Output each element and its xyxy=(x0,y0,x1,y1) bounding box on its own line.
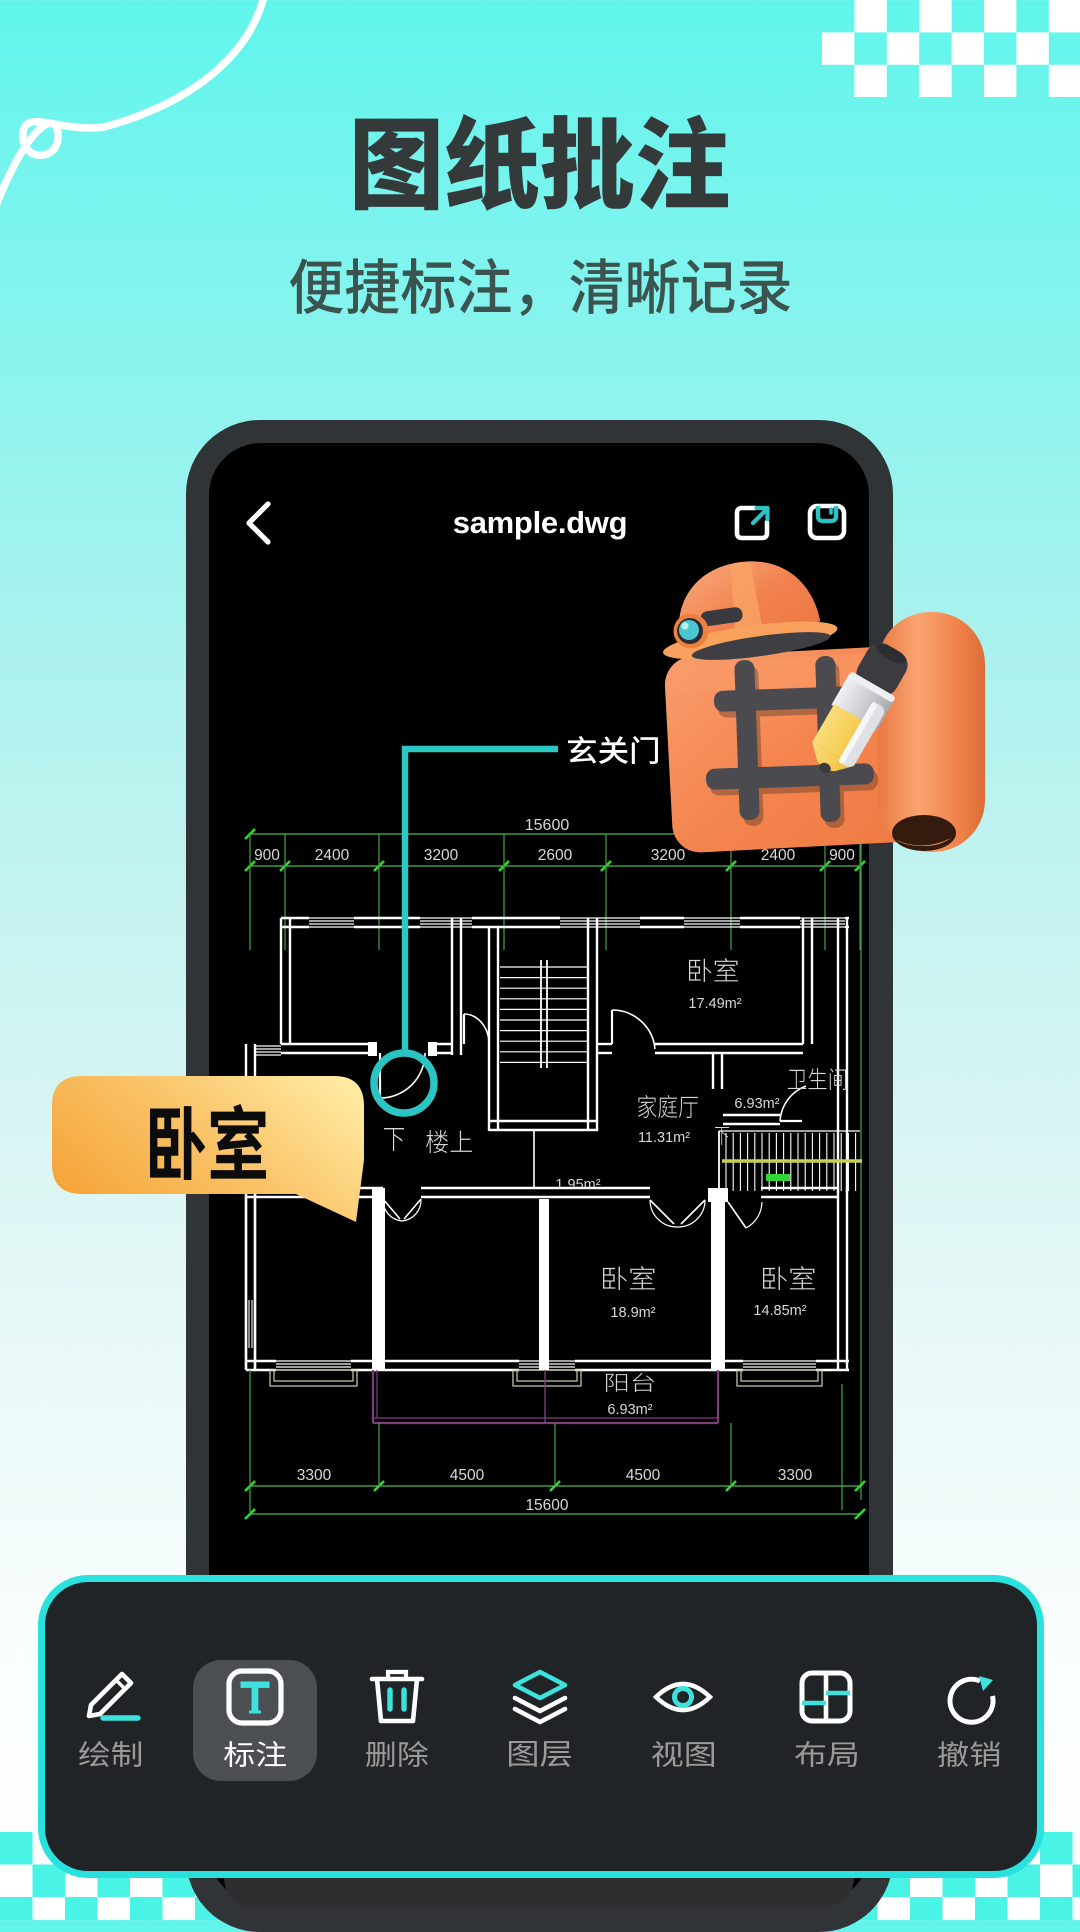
svg-text:2600: 2600 xyxy=(538,847,573,864)
svg-text:4500: 4500 xyxy=(450,1467,485,1484)
svg-text:11.31m²: 11.31m² xyxy=(638,1130,690,1146)
svg-text:17.49m²: 17.49m² xyxy=(688,996,741,1012)
svg-text:15600: 15600 xyxy=(525,817,570,834)
svg-text:2400: 2400 xyxy=(315,847,350,864)
svg-text:6.93m²: 6.93m² xyxy=(734,1096,779,1112)
svg-text:6.93m²: 6.93m² xyxy=(607,1402,652,1418)
svg-text:3200: 3200 xyxy=(424,847,459,864)
svg-text:18.9m²: 18.9m² xyxy=(610,1305,655,1321)
svg-text:900: 900 xyxy=(254,847,280,864)
svg-text:4500: 4500 xyxy=(626,1467,661,1484)
svg-text:14.85m²: 14.85m² xyxy=(753,1303,806,1319)
svg-text:1.95m²: 1.95m² xyxy=(555,1177,600,1193)
svg-text:3300: 3300 xyxy=(297,1467,332,1484)
svg-text:15600: 15600 xyxy=(525,1497,568,1514)
svg-text:3300: 3300 xyxy=(778,1467,813,1484)
